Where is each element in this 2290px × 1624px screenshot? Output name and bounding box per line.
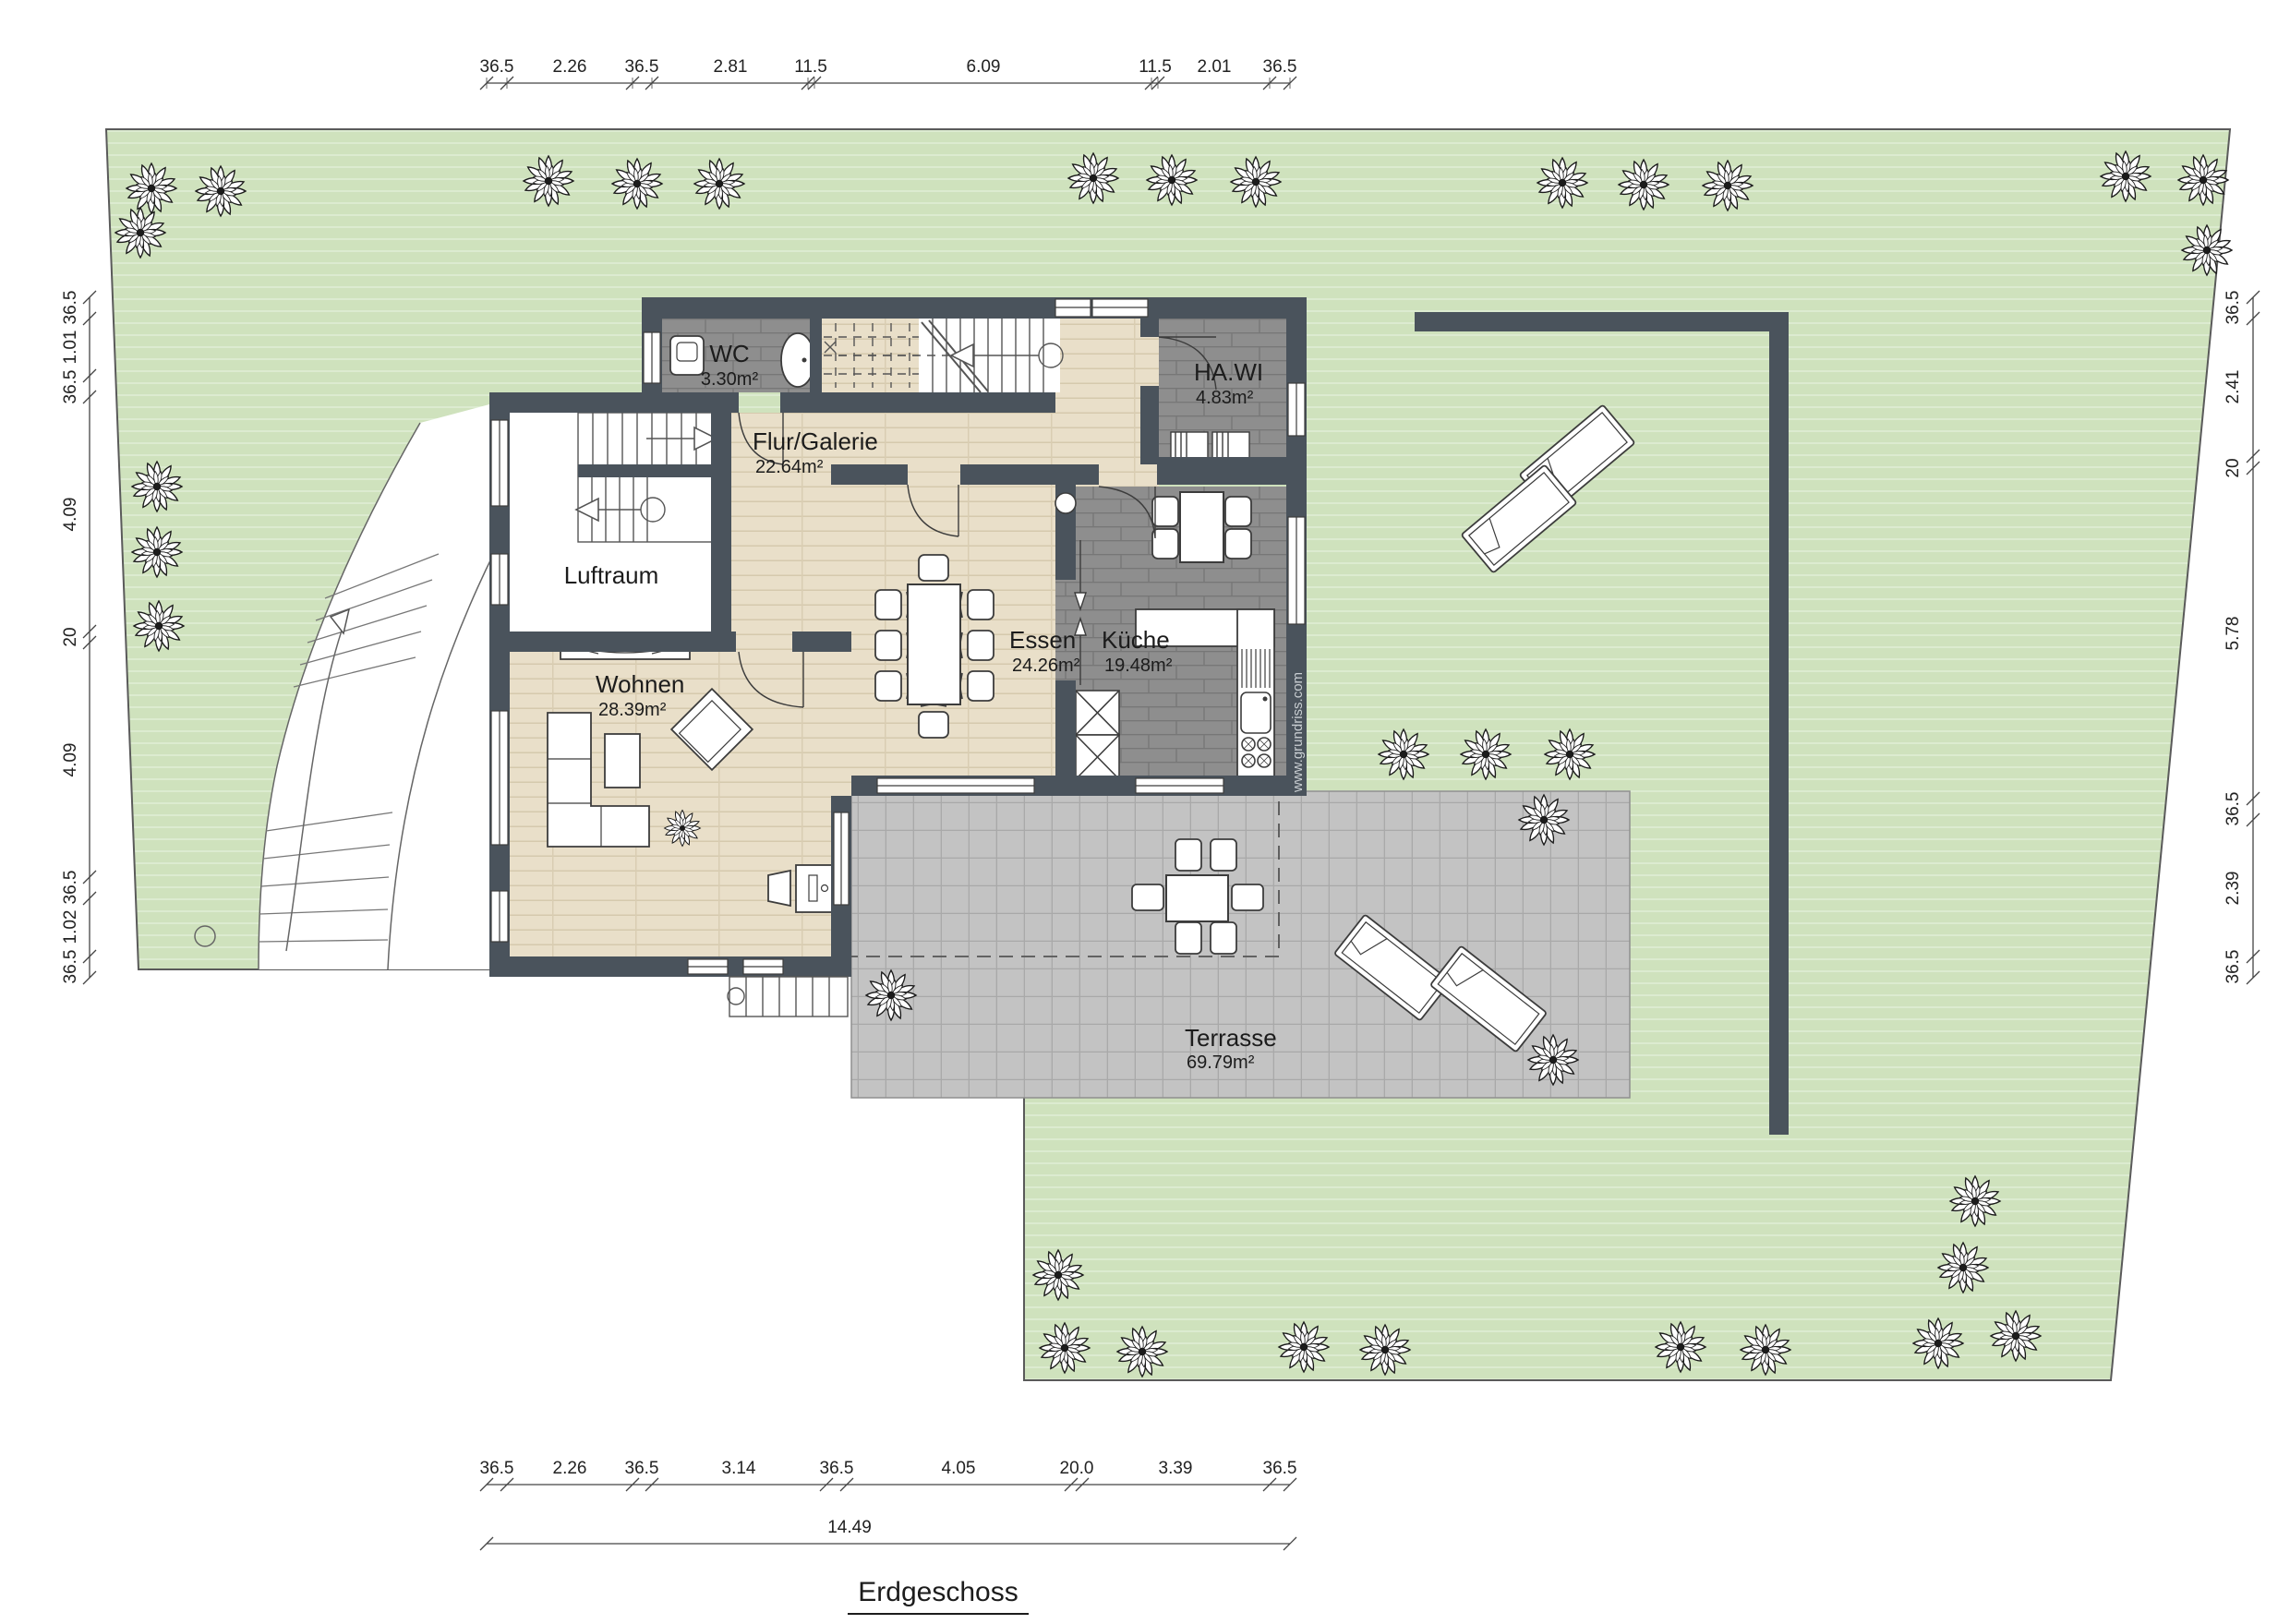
room-area-kueche: 19.48m² [1104, 656, 1173, 676]
dim-value: 5.78 [2224, 617, 2243, 651]
window [644, 332, 660, 383]
dim-value: 2.39 [2224, 872, 2243, 906]
dim-value: 36.5 [820, 1459, 854, 1478]
dim-value: 4.09 [61, 498, 80, 532]
dim-value: 36.5 [61, 370, 80, 404]
window [743, 959, 783, 974]
terrace-sliding-door [877, 778, 1034, 793]
room-label-luftraum: Luftraum [564, 561, 659, 589]
dim-value: 3.39 [1159, 1459, 1193, 1478]
room-label-hawi: HA.WI [1194, 358, 1263, 386]
dim-value: 4.09 [61, 743, 80, 777]
dimension-labels-right: 36.5 2.41 20 5.78 36.5 2.39 36.5 [2224, 291, 2243, 984]
window [491, 420, 508, 506]
dim-value: 20.0 [1060, 1459, 1094, 1478]
window [688, 959, 728, 974]
dim-value: 2.26 [553, 1459, 587, 1478]
dim-value: 36.5 [1263, 57, 1297, 77]
room-area-wohnen: 28.39m² [598, 700, 667, 720]
dishwasher [1242, 649, 1270, 688]
dim-value: 20 [2224, 458, 2243, 477]
window [491, 711, 508, 845]
room-label-wc: WC [709, 340, 749, 367]
dim-value: 2.26 [553, 57, 587, 77]
room-area-hawi: 4.83m² [1196, 388, 1254, 408]
dim-value: 2.41 [2224, 370, 2243, 404]
dim-value: 36.5 [1263, 1459, 1297, 1478]
dim-value: 1.02 [61, 910, 80, 944]
window [1092, 299, 1148, 317]
room-area-essen: 24.26m² [1012, 656, 1080, 676]
dim-total: 14.49 [827, 1518, 872, 1537]
dim-value: 36.5 [2224, 950, 2243, 984]
dim-value: 20 [61, 627, 80, 646]
dim-value: 2.01 [1198, 57, 1232, 77]
floorplan-page: Terrasse 69.79m² [0, 0, 2290, 1619]
dimension-labels-left: 36.5 1.01 36.5 4.09 20 4.09 36.5 1.02 36… [61, 291, 80, 984]
room-label-flur: Flur/Galerie [753, 427, 878, 455]
shaft [1076, 691, 1119, 779]
washbasin [781, 333, 814, 387]
watermark-text: www.grundriss.com [1290, 672, 1306, 793]
dim-value: 36.5 [61, 871, 80, 905]
dim-value: 3.14 [722, 1459, 756, 1478]
room-area-flur: 22.64m² [755, 457, 824, 477]
dim-value: 36.5 [2224, 291, 2243, 325]
dimension-labels-top: 36.5 2.26 36.5 2.81 11.5 6.09 11.5 2.01 … [480, 57, 1297, 77]
dim-value: 36.5 [480, 1459, 514, 1478]
dim-value: 36.5 [625, 1459, 659, 1478]
dim-value: 36.5 [61, 291, 80, 325]
room-label-kueche: Küche [1102, 626, 1170, 654]
room-area-wc: 3.30m² [701, 369, 759, 390]
dim-value: 2.81 [714, 57, 748, 77]
desk-chair [768, 871, 790, 906]
dim-value: 36.5 [61, 950, 80, 984]
luftraum-staircase [576, 413, 717, 542]
dim-value: 11.5 [794, 57, 827, 77]
column [1055, 493, 1076, 513]
dim-value: 6.09 [967, 57, 1001, 77]
dimension-labels-bottom: 36.5 2.26 36.5 3.14 36.5 4.05 20.0 3.39 … [480, 1459, 1297, 1537]
kitchen-terrace-door [1136, 778, 1223, 793]
window [491, 891, 508, 942]
page-title: Erdgeschoss [858, 1577, 1018, 1607]
room-area-terrasse: 69.79m² [1187, 1053, 1255, 1073]
entry-door [1055, 299, 1091, 317]
window [834, 812, 849, 905]
room-label-wohnen: Wohnen [596, 670, 684, 698]
window [1288, 383, 1305, 436]
exterior-stair [728, 977, 848, 1017]
room-label-terrasse: Terrasse [1185, 1024, 1277, 1052]
dim-value: 36.5 [625, 57, 659, 77]
dim-value: 11.5 [1139, 57, 1172, 77]
house-entrance-door [491, 554, 508, 605]
dim-value: 36.5 [480, 57, 514, 77]
dim-value: 36.5 [2224, 792, 2243, 826]
room-label-essen: Essen [1009, 626, 1076, 654]
window [1288, 517, 1305, 624]
coffee-table [605, 734, 640, 788]
dim-value: 4.05 [942, 1459, 976, 1478]
floorplan-drawing: Terrasse 69.79m² [0, 0, 2290, 1619]
dim-value: 1.01 [61, 331, 80, 365]
